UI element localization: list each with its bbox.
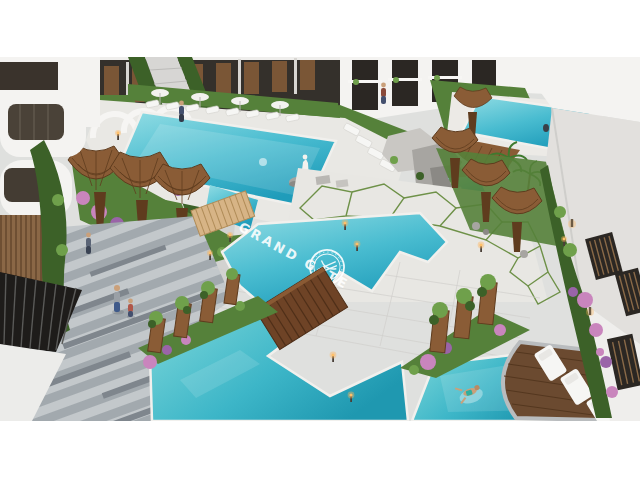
pedestrian	[179, 101, 184, 122]
top-letterbox	[0, 0, 640, 57]
balcony-glass	[8, 104, 64, 140]
render-canvas: GRAND GATE	[0, 0, 640, 480]
resort-aerial-scene: GRAND GATE	[0, 0, 640, 480]
pedestrian	[381, 83, 386, 104]
pool-float	[259, 158, 267, 166]
pedestrian	[86, 233, 91, 254]
bottom-letterbox	[0, 421, 640, 480]
